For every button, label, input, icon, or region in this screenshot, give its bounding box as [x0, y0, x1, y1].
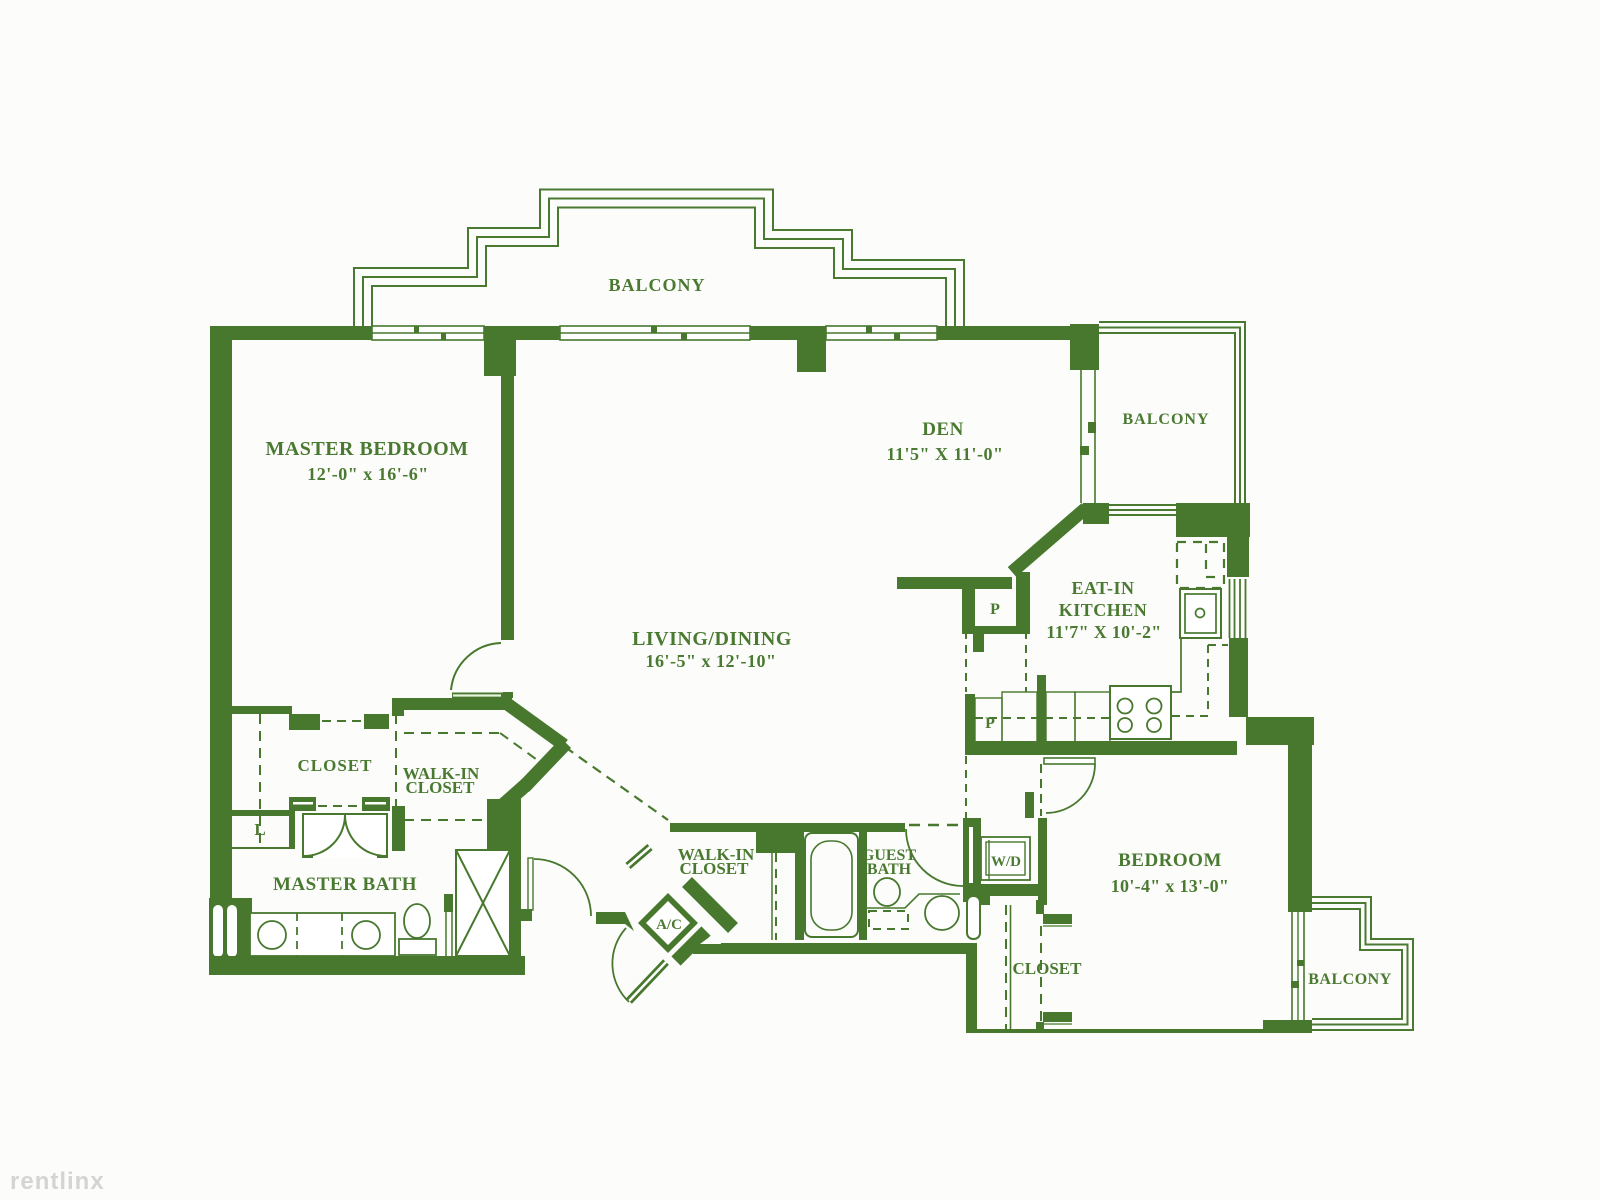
svg-text:EAT-IN: EAT-IN — [1071, 578, 1134, 598]
svg-text:BATH: BATH — [867, 861, 912, 878]
svg-text:W/D: W/D — [991, 854, 1021, 870]
svg-text:BALCONY: BALCONY — [608, 275, 705, 295]
svg-text:KITCHEN: KITCHEN — [1059, 600, 1148, 620]
svg-text:11'7" X 10'-2": 11'7" X 10'-2" — [1046, 622, 1161, 642]
svg-text:CLOSET: CLOSET — [1013, 959, 1083, 978]
svg-text:16'-5" x 12'-10": 16'-5" x 12'-10" — [646, 651, 777, 671]
svg-text:10'-4" x 13'-0": 10'-4" x 13'-0" — [1111, 876, 1229, 896]
svg-text:DEN: DEN — [922, 419, 964, 440]
svg-text:P: P — [990, 601, 1000, 618]
svg-text:A/C: A/C — [656, 917, 682, 933]
svg-text:12'-0" x 16'-6": 12'-0" x 16'-6" — [307, 464, 428, 484]
svg-text:L: L — [254, 820, 265, 839]
svg-text:CLOSET: CLOSET — [298, 756, 373, 775]
svg-text:BALCONY: BALCONY — [1122, 411, 1209, 428]
svg-text:P: P — [985, 715, 995, 732]
svg-text:MASTER BEDROOM: MASTER BEDROOM — [265, 438, 468, 460]
svg-text:BALCONY: BALCONY — [1308, 971, 1392, 988]
svg-text:BEDROOM: BEDROOM — [1118, 850, 1222, 871]
svg-text:CLOSET: CLOSET — [406, 778, 476, 797]
svg-text:rentlinx: rentlinx — [10, 1168, 105, 1195]
svg-text:11'5" X 11'-0": 11'5" X 11'-0" — [887, 444, 1004, 464]
svg-text:MASTER BATH: MASTER BATH — [273, 874, 417, 895]
svg-text:CLOSET: CLOSET — [680, 859, 750, 878]
svg-text:LIVING/DINING: LIVING/DINING — [632, 628, 792, 650]
